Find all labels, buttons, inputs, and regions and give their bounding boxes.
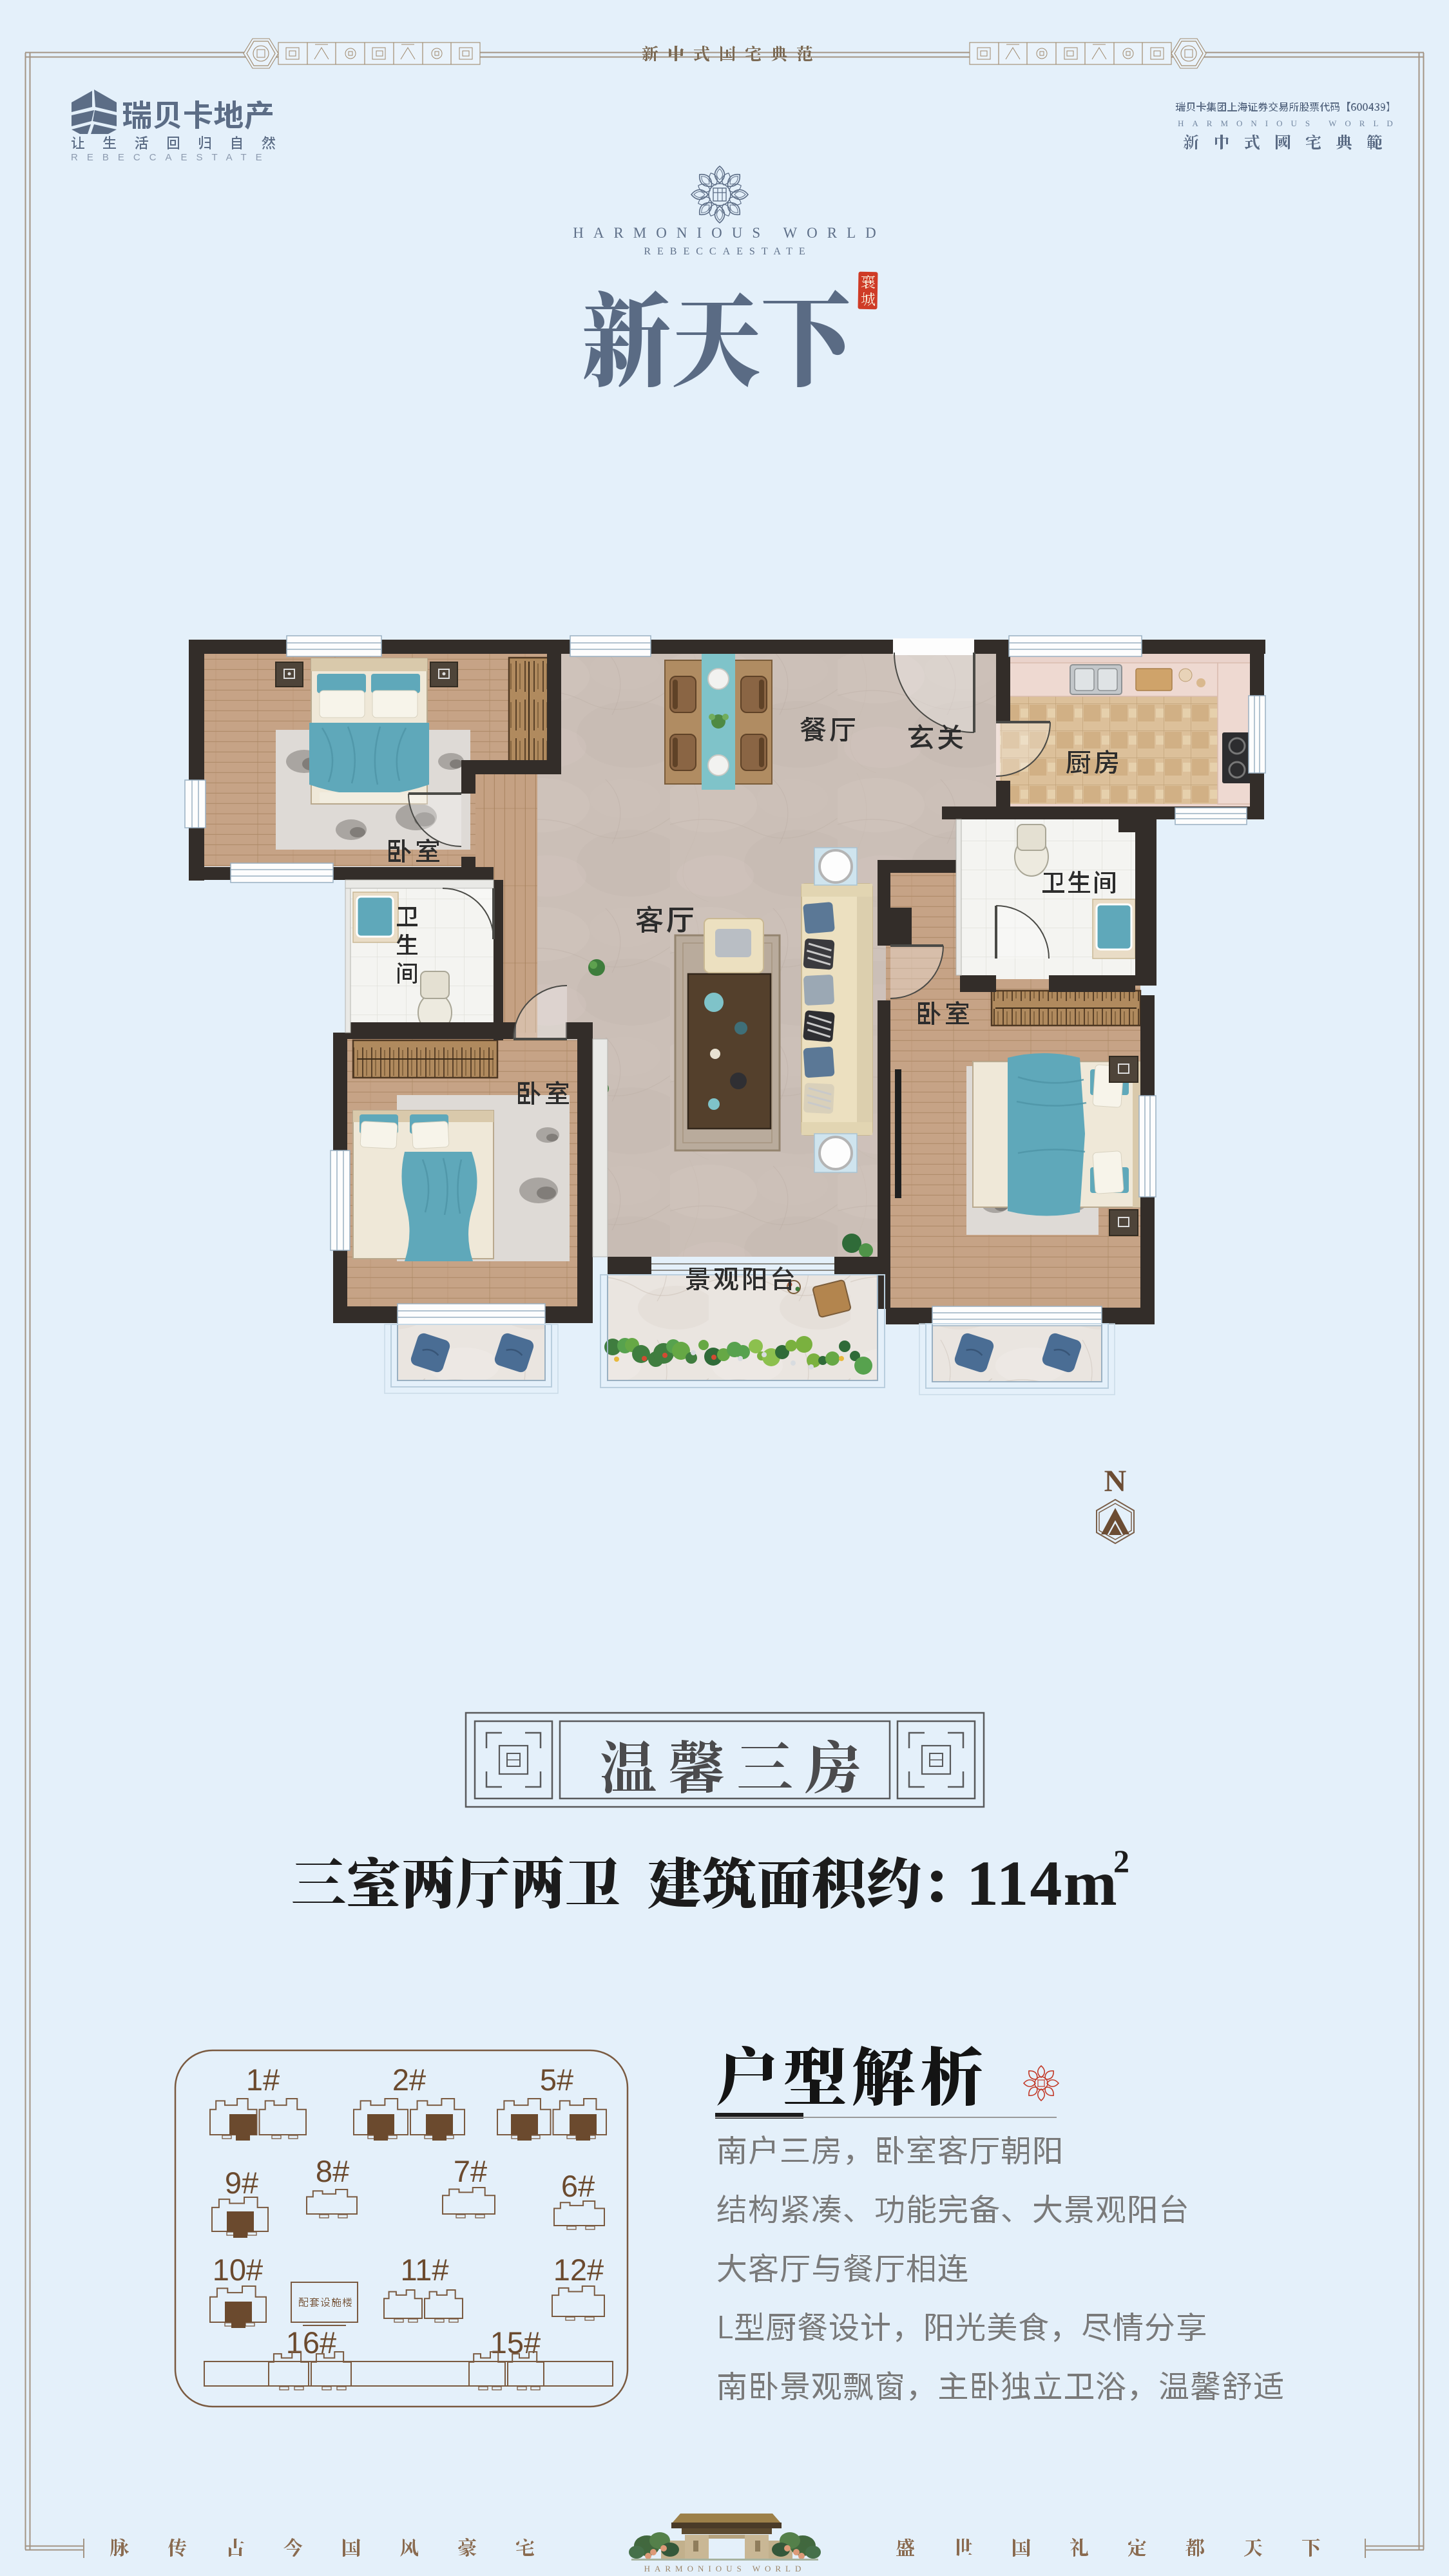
svg-text:114m: 114m (966, 1847, 1118, 1919)
svg-text:2#: 2# (392, 2063, 426, 2097)
svg-text:5#: 5# (540, 2063, 573, 2097)
svg-text:N: N (1104, 1464, 1127, 1498)
svg-text:10#: 10# (213, 2253, 263, 2287)
svg-text:HARMONIOUS WORLD: HARMONIOUS WORLD (644, 2564, 806, 2573)
svg-text:9#: 9# (225, 2166, 258, 2200)
svg-text:16#: 16# (286, 2325, 336, 2360)
svg-text:1#: 1# (246, 2063, 280, 2097)
svg-text:6#: 6# (561, 2169, 595, 2203)
svg-text:11#: 11# (401, 2253, 449, 2287)
svg-text:8#: 8# (316, 2154, 349, 2188)
svg-text:2: 2 (1113, 1843, 1129, 1879)
svg-text:7#: 7# (454, 2154, 487, 2188)
svg-text:12#: 12# (553, 2253, 604, 2287)
